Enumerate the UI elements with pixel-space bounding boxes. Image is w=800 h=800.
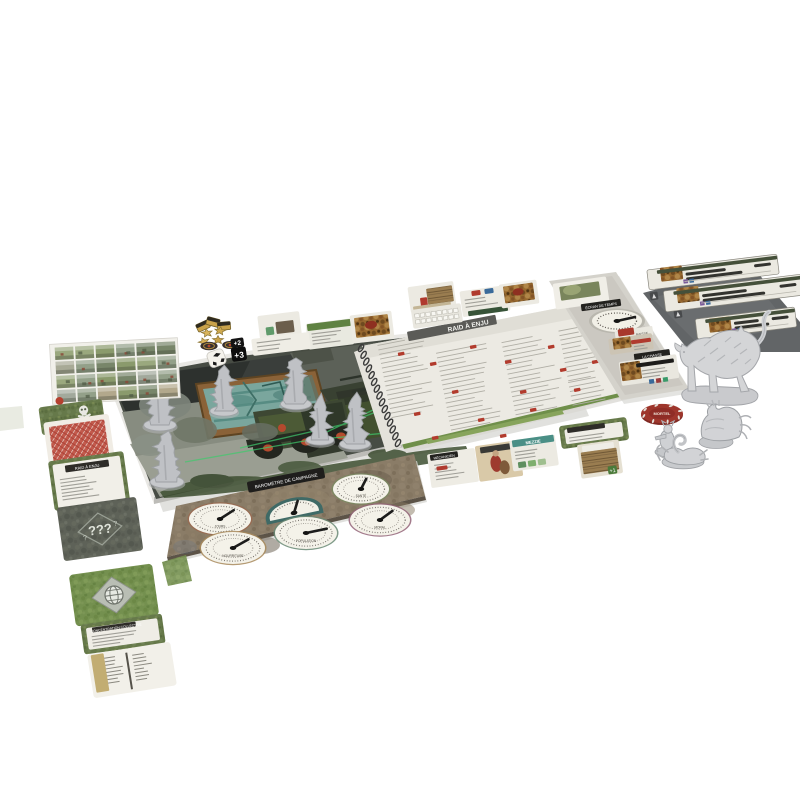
- svg-text:POPULATION: POPULATION: [296, 539, 317, 543]
- svg-text:+2: +2: [233, 340, 242, 348]
- svg-text:JOURS: JOURS: [215, 525, 226, 529]
- svg-text:MORAL: MORAL: [374, 526, 386, 530]
- svg-text:SANTÉ: SANTÉ: [356, 493, 367, 498]
- svg-text:MORTEL: MORTEL: [654, 411, 671, 416]
- svg-text:NOURRITURE: NOURRITURE: [222, 554, 243, 558]
- svg-text:+1: +1: [609, 468, 616, 475]
- svg-text:+3: +3: [234, 349, 245, 360]
